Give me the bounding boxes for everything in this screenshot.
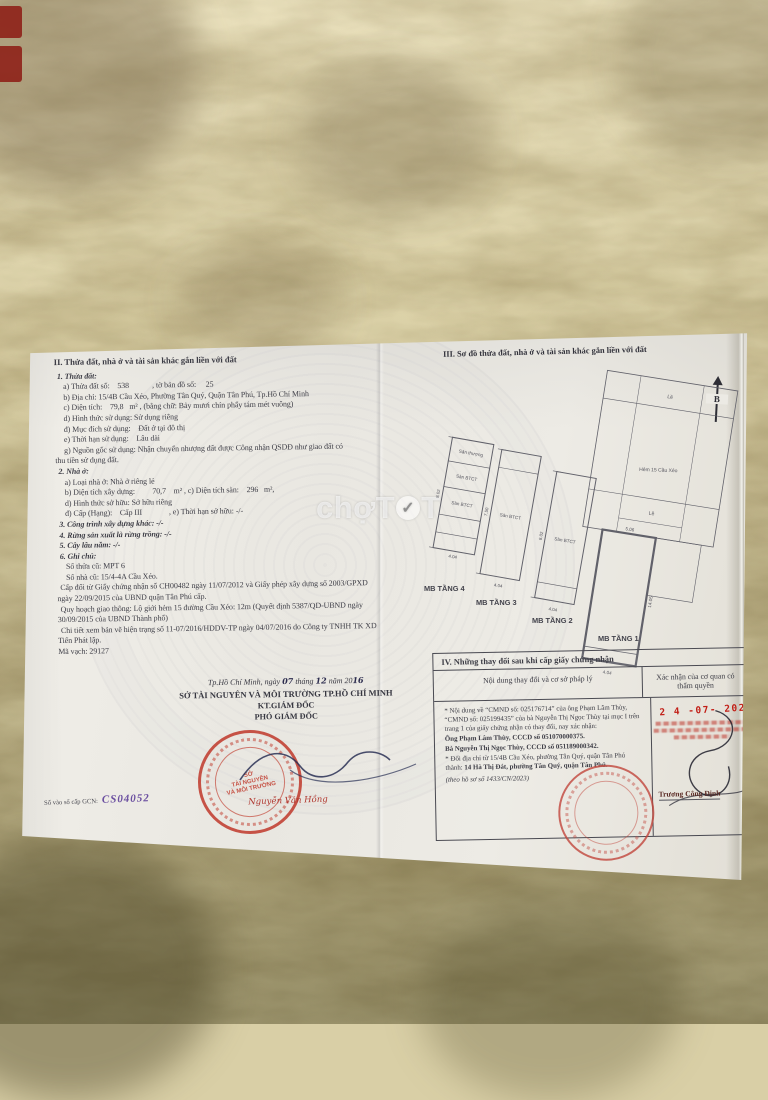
registry-number: Số vào sổ cấp GCN: CS04052: [44, 788, 150, 810]
plan-street-label: Hẻm 15 Cầu Xéo: [639, 467, 678, 474]
deputy-director-signature: [232, 738, 422, 798]
change-paragraph: * Nội dung về “CMND số: 025176714” của ô…: [444, 703, 642, 734]
plan-dimension: 7.50: [483, 507, 490, 517]
approver-name: Trương Công Định: [659, 789, 721, 801]
handwritten-month: 12: [315, 675, 326, 685]
plan-label-level-1: MB TẦNG 1: [598, 634, 639, 643]
registry-label: Số vào sổ cấp GCN:: [44, 798, 98, 807]
plan-label-level-4: MB TẦNG 4: [424, 584, 465, 593]
plan-room-label: Sàn BTCT: [451, 500, 473, 509]
plan-dimension: 4.04: [548, 606, 558, 613]
plan-dimension: 4.04: [494, 582, 504, 589]
watermark-check-icon: ✓: [396, 496, 420, 520]
plan-curb-label: Lề: [648, 511, 655, 518]
plan-label-level-3: MB TẦNG 3: [476, 598, 517, 607]
section-4-changes-table: IV. Những thay đổi sau khi cấp giấy chứn…: [432, 647, 752, 841]
plan-room-label: Sàn BTCT: [456, 473, 478, 482]
red-sticker-fragment: [0, 6, 22, 38]
plan-dimension: 14.05: [647, 595, 654, 608]
land-certificate-page: II. Thửa đất, nhà ở và tài sản khác gắn …: [20, 330, 750, 880]
confirmation-red-stamp: [553, 759, 660, 866]
plan-room-label: Sân thượng: [458, 449, 483, 458]
chotot-watermark: chợT✓T: [316, 490, 441, 526]
photo-of-land-certificate: { "stickers":{"note":"red fragments at p…: [0, 0, 768, 1024]
plan-curb-label: Lề: [667, 394, 674, 401]
handwritten-day: 07: [282, 676, 293, 686]
watermark-text: chợ: [316, 490, 376, 526]
registry-value-handwritten: CS04052: [102, 792, 150, 806]
signature-block: Tp.Hồ Chí Minh, ngày 07 tháng 12 năm 201…: [138, 674, 435, 723]
plan-dimension: 5.06: [625, 526, 635, 532]
column-header-content: Nội dung thay đổi và cơ sở pháp lý: [434, 667, 644, 701]
plan-dimension: 4.04: [448, 553, 458, 560]
plan-room-label: Sàn BTCT: [499, 512, 521, 521]
table-body-row: * Nội dung về “CMND số: 025176714” của ô…: [434, 696, 751, 840]
column-header-confirmation: Xác nhận của cơ quan có thẩm quyền: [643, 665, 748, 697]
watermark-text: T: [376, 490, 395, 526]
handwritten-year: 16: [352, 675, 363, 685]
confirmation-cell: 2 4 -07- 2023 Trương Công Định: [651, 696, 751, 836]
red-sticker-fragment: [0, 46, 22, 82]
plan-dimension: 8.02: [538, 531, 545, 541]
